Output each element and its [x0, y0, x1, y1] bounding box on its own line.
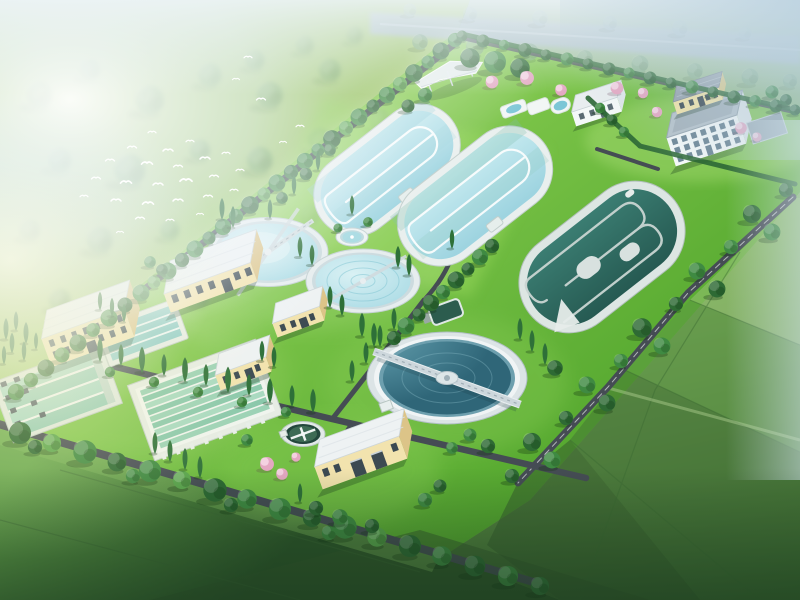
rendering-canvas: [0, 0, 800, 600]
haze-right-edge: [726, 120, 800, 480]
bottom-vignette: [0, 468, 800, 600]
plant-rendering: [0, 0, 800, 600]
center-platform: [360, 278, 366, 284]
